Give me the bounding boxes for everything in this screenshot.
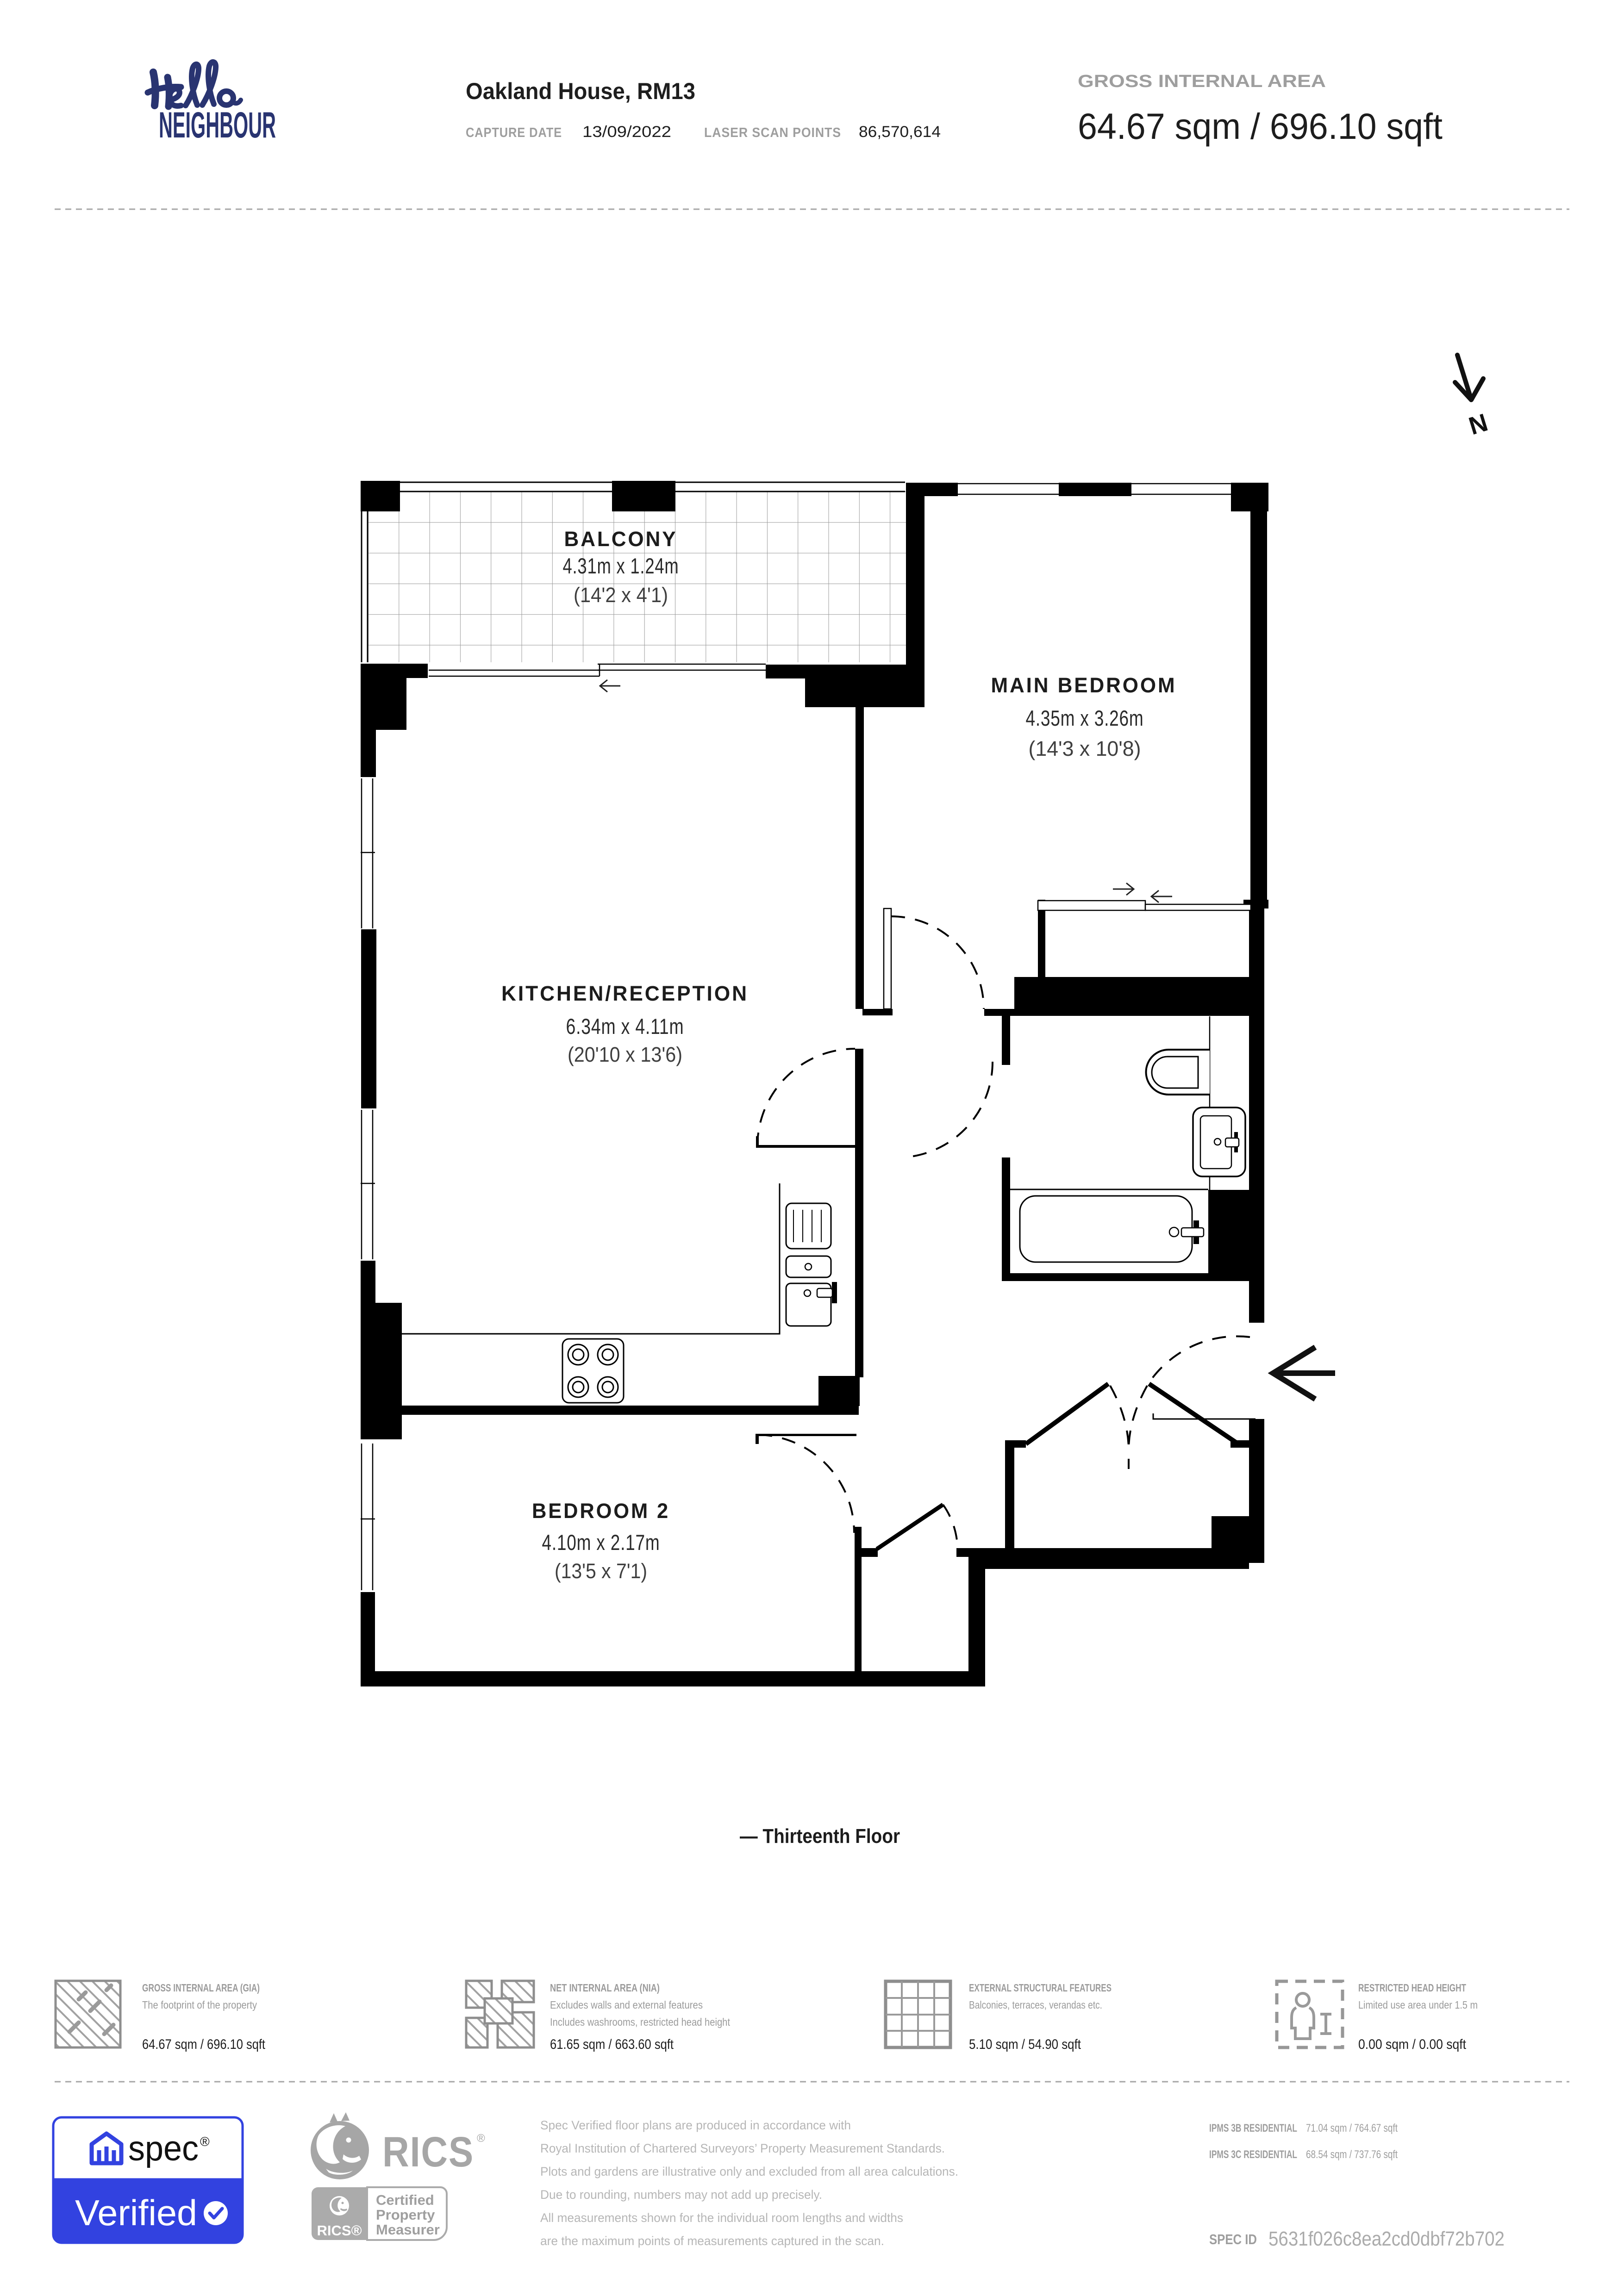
svg-text:All measurements shown for the: All measurements shown for the individua… <box>540 2211 903 2225</box>
svg-text:®: ® <box>200 2134 210 2149</box>
svg-text:Spec Verified floor plans are: Spec Verified floor plans are produced i… <box>540 2118 851 2132</box>
svg-text:The footprint of the property: The footprint of the property <box>142 1999 257 2011</box>
svg-text:Certified: Certified <box>376 2192 434 2208</box>
svg-text:spec: spec <box>128 2129 199 2168</box>
svg-text:(20'10 x 13'6): (20'10 x 13'6) <box>568 1043 682 1066</box>
svg-text:4.31m x 1.24m: 4.31m x 1.24m <box>563 554 679 578</box>
svg-text:Plots and gardens are illustra: Plots and gardens are illustrative only … <box>540 2165 958 2178</box>
svg-text:Royal Institution of Chartered: Royal Institution of Chartered Surveyors… <box>540 2141 945 2155</box>
svg-text:are the maximum points of meas: are the maximum points of measurements c… <box>540 2234 884 2248</box>
svg-text:86,570,614: 86,570,614 <box>859 123 941 141</box>
svg-text:— Thirteenth Floor: — Thirteenth Floor <box>740 1825 900 1848</box>
svg-text:NET INTERNAL AREA (NIA): NET INTERNAL AREA (NIA) <box>550 1982 660 1994</box>
svg-text:68.54 sqm / 737.76 sqft: 68.54 sqm / 737.76 sqft <box>1306 2148 1398 2161</box>
svg-text:61.65 sqm / 663.60 sqft: 61.65 sqm / 663.60 sqft <box>550 2037 674 2052</box>
svg-text:CAPTURE DATE: CAPTURE DATE <box>466 125 562 140</box>
svg-text:4.10m x 2.17m: 4.10m x 2.17m <box>542 1530 660 1555</box>
svg-text:SPEC ID: SPEC ID <box>1209 2231 1257 2247</box>
svg-text:NEIGHBOUR: NEIGHBOUR <box>159 104 276 145</box>
svg-text:13/09/2022: 13/09/2022 <box>582 123 671 141</box>
svg-text:6.34m x 4.11m: 6.34m x 4.11m <box>566 1014 684 1039</box>
svg-text:RICS: RICS <box>382 2128 474 2176</box>
svg-text:RICS®: RICS® <box>317 2222 362 2239</box>
svg-text:64.67 sqm / 696.10 sqft: 64.67 sqm / 696.10 sqft <box>1078 106 1443 147</box>
svg-text:Measurer: Measurer <box>376 2221 440 2238</box>
svg-text:Verified: Verified <box>75 2192 197 2233</box>
svg-text:0.00 sqm / 0.00 sqft: 0.00 sqm / 0.00 sqft <box>1358 2037 1467 2052</box>
svg-text:(13'5 x 7'1): (13'5 x 7'1) <box>555 1559 647 1583</box>
svg-text:MAIN BEDROOM: MAIN BEDROOM <box>991 673 1177 697</box>
svg-text:5631f026c8ea2cd0dbf72b702: 5631f026c8ea2cd0dbf72b702 <box>1268 2228 1505 2250</box>
svg-text:(14'3 x 10'8): (14'3 x 10'8) <box>1029 737 1141 760</box>
svg-text:5.10 sqm / 54.90 sqft: 5.10 sqm / 54.90 sqft <box>969 2037 1081 2052</box>
svg-text:RESTRICTED HEAD HEIGHT: RESTRICTED HEAD HEIGHT <box>1358 1982 1466 1994</box>
svg-text:Oakland House, RM13: Oakland House, RM13 <box>466 78 695 104</box>
svg-text:Includes washrooms, restricted: Includes washrooms, restricted head heig… <box>550 2016 731 2028</box>
svg-text:IPMS 3B RESIDENTIAL: IPMS 3B RESIDENTIAL <box>1209 2122 1297 2134</box>
svg-text:Property: Property <box>376 2207 435 2223</box>
svg-text:Excludes walls and external fe: Excludes walls and external features <box>550 1999 703 2011</box>
svg-text:GROSS INTERNAL AREA: GROSS INTERNAL AREA <box>1078 72 1326 91</box>
svg-text:Due to rounding, numbers may n: Due to rounding, numbers may not add up … <box>540 2188 822 2202</box>
svg-text:KITCHEN/RECEPTION: KITCHEN/RECEPTION <box>501 982 749 1005</box>
svg-text:Limited use area under 1.5 m: Limited use area under 1.5 m <box>1358 1999 1478 2011</box>
svg-text:64.67 sqm / 696.10 sqft: 64.67 sqm / 696.10 sqft <box>142 2037 266 2052</box>
svg-text:IPMS 3C RESIDENTIAL: IPMS 3C RESIDENTIAL <box>1209 2148 1297 2161</box>
svg-text:BALCONY: BALCONY <box>564 527 678 551</box>
svg-text:71.04 sqm / 764.67 sqft: 71.04 sqm / 764.67 sqft <box>1306 2122 1398 2134</box>
svg-text:EXTERNAL STRUCTURAL FEATURES: EXTERNAL STRUCTURAL FEATURES <box>969 1982 1112 1994</box>
svg-text:LASER SCAN POINTS: LASER SCAN POINTS <box>704 125 841 140</box>
svg-text:Balconies, terraces, verandas: Balconies, terraces, verandas etc. <box>969 1999 1102 2011</box>
svg-text:4.35m x 3.26m: 4.35m x 3.26m <box>1026 706 1144 730</box>
svg-text:(14'2 x 4'1): (14'2 x 4'1) <box>574 583 668 607</box>
svg-text:GROSS INTERNAL AREA (GIA): GROSS INTERNAL AREA (GIA) <box>142 1982 260 1994</box>
svg-text:®: ® <box>477 2132 485 2145</box>
svg-text:BEDROOM 2: BEDROOM 2 <box>532 1499 670 1523</box>
